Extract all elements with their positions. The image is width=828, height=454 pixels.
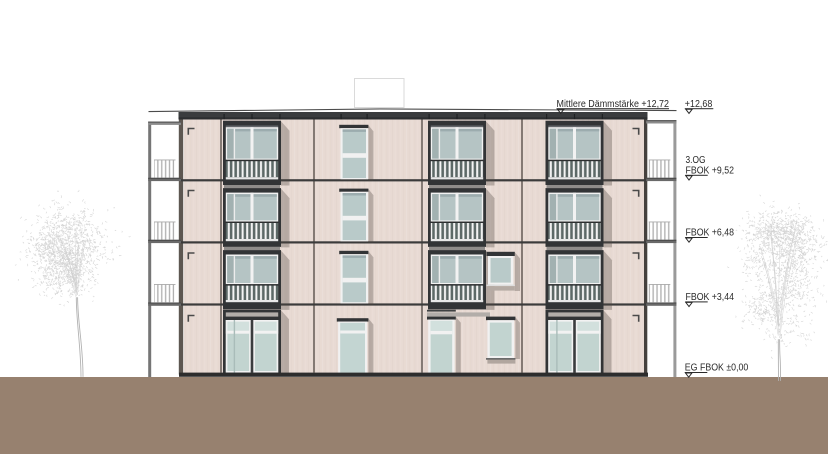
- svg-text:3.OG: 3.OG: [686, 155, 706, 166]
- svg-text:FBOK +9,52: FBOK +9,52: [686, 165, 735, 176]
- svg-text:FBOK +3,44: FBOK +3,44: [686, 292, 735, 303]
- svg-text:EG FBOK ±0,00: EG FBOK ±0,00: [685, 363, 749, 374]
- svg-text:+12,68: +12,68: [685, 99, 713, 110]
- svg-text:Mittlere Dämmstärke +12,72: Mittlere Dämmstärke +12,72: [557, 99, 670, 110]
- svg-text:FBOK +6,48: FBOK +6,48: [686, 228, 735, 239]
